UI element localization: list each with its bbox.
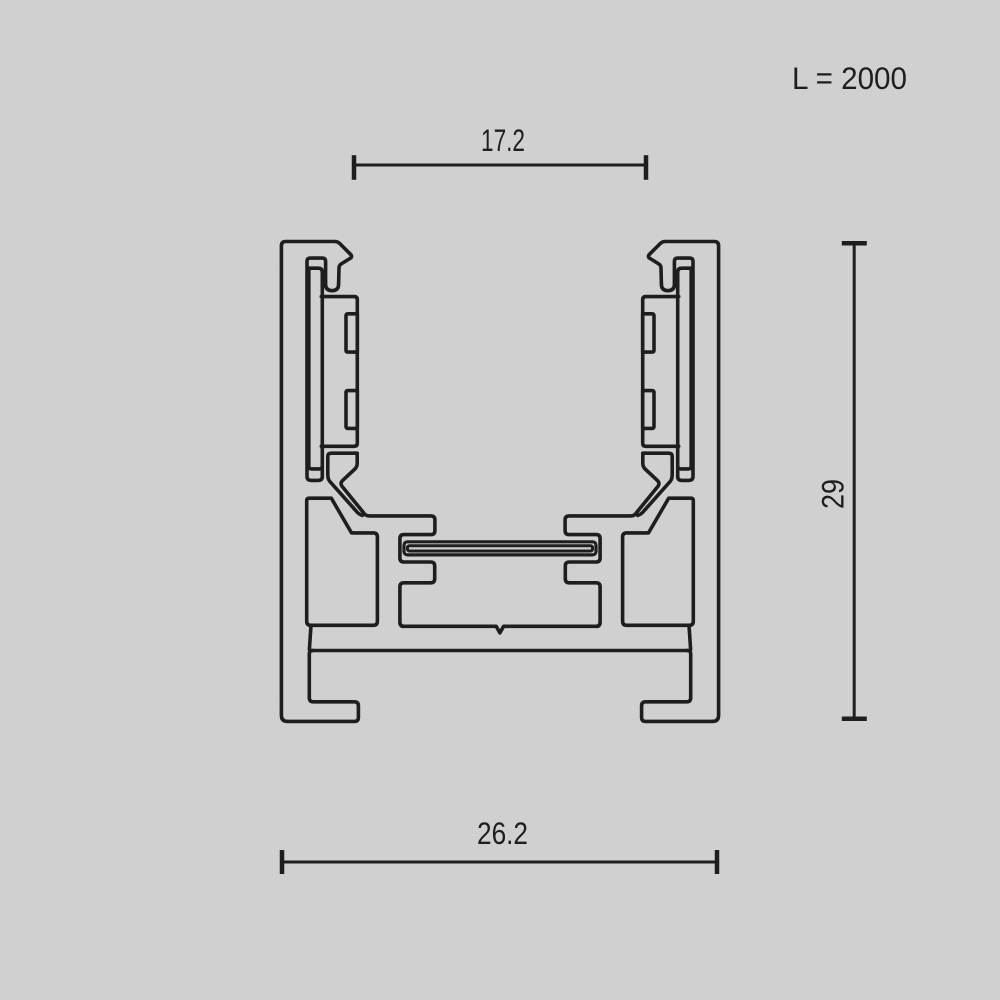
svg-text:L = 2000: L = 2000 — [792, 60, 907, 96]
svg-text:29: 29 — [814, 479, 850, 509]
svg-text:17.2: 17.2 — [481, 122, 525, 158]
svg-text:26.2: 26.2 — [477, 815, 528, 851]
